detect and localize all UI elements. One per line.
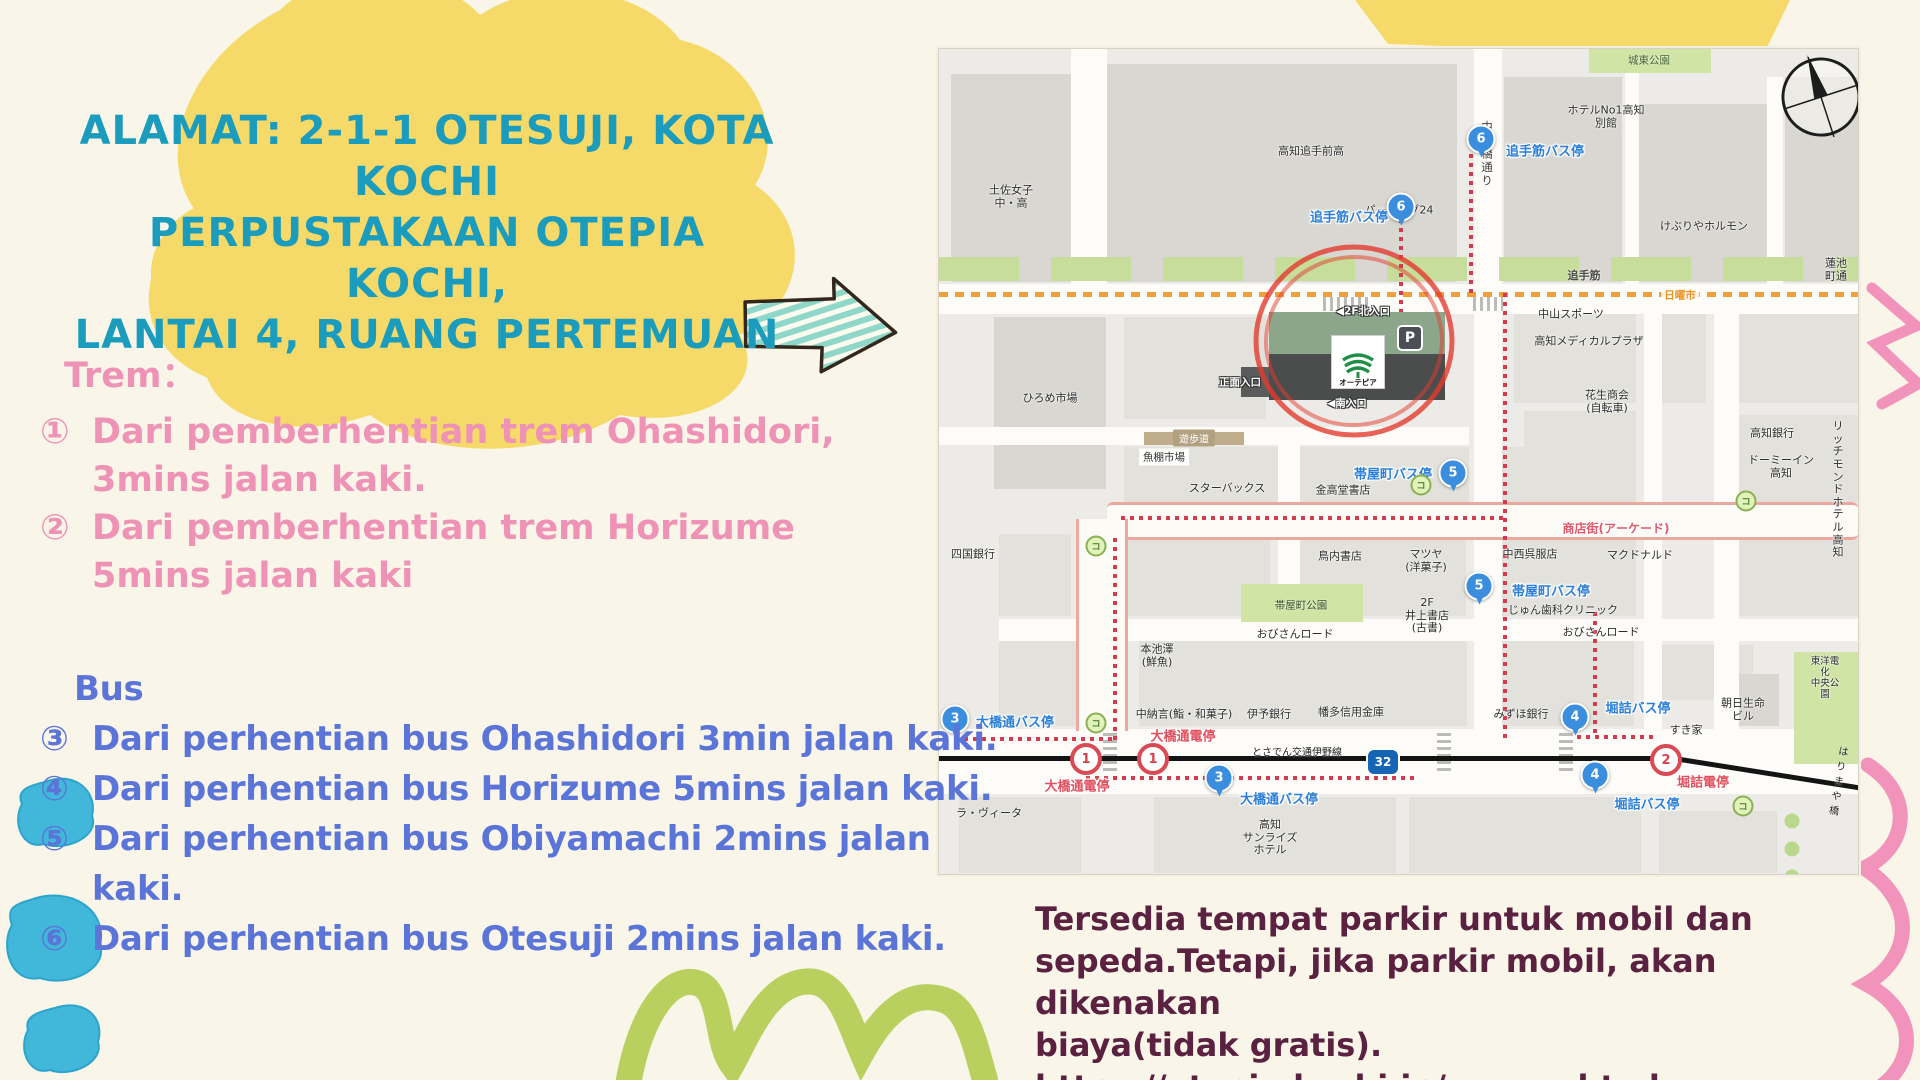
green-scribble: [628, 981, 985, 1080]
bus-stop-pin-5: 5: [1439, 459, 1468, 488]
tree-dot: [1785, 842, 1800, 857]
map-cwh: [1473, 297, 1503, 311]
bus-stop-pin-5: 5: [1465, 572, 1494, 601]
map-bk2: [999, 534, 1071, 616]
route-32-shield: 32: [1366, 748, 1400, 776]
tram-heading: Trem：: [64, 352, 840, 400]
map-rtv: [1113, 534, 1117, 740]
tram-item-text2: 5mins jalan kaki: [92, 552, 840, 600]
map-bk: [1107, 64, 1457, 282]
bus-directions: Bus ③Dari perhentian bus Ohashidori 3min…: [40, 664, 1030, 964]
bus-item-number: ③: [40, 714, 69, 764]
map-rth: [1577, 735, 1657, 739]
tram-item-text2: 3mins jalan kaki.: [92, 456, 840, 504]
tram-item-number: ①: [40, 408, 70, 456]
map-cwh: [1323, 297, 1369, 311]
title-line-2: KOCHI: [70, 157, 784, 208]
map-rail: [939, 756, 1676, 761]
bus-stop-pin-6: 6: [1467, 125, 1496, 154]
bus-item-text: Dari perhentian bus Horizume 5mins jalan…: [92, 764, 1030, 814]
tree-dot: [1785, 870, 1800, 876]
map-rth: [1121, 516, 1505, 520]
convenience-store-icon: コ: [1411, 475, 1432, 496]
map-bk2: [1659, 811, 1777, 873]
bus-heading: Bus: [74, 664, 1030, 714]
bus-stop-pin-4: 4: [1561, 703, 1590, 732]
bus-item-number: ⑤: [40, 814, 69, 864]
map-bk: [1504, 77, 1622, 282]
bus-item-text: Dari perhentian bus Ohashidori 3min jala…: [92, 714, 1030, 764]
map-cwv: [1437, 733, 1451, 771]
bus-item-1: ③Dari perhentian bus Ohashidori 3min jal…: [40, 714, 1030, 764]
map-label: 四国銀行: [951, 549, 995, 562]
tram-stop-marker-1: 1: [1137, 743, 1169, 775]
map-rtv: [1469, 153, 1473, 293]
bus-item-2: ④Dari perhentian bus Horizume 5mins jala…: [40, 764, 1030, 814]
tram-directions: Trem： ①Dari pemberhentian trem Ohashidor…: [40, 352, 840, 600]
compass-icon: [1775, 51, 1859, 143]
note-line-2: sepeda.Tetapi, jika parkir mobil, akan d…: [1035, 940, 1875, 1024]
otepia-logo-text: オーテピア: [1339, 378, 1377, 388]
tram-item-2: ②Dari pemberhentian trem Horizume5mins j…: [40, 504, 840, 600]
map-rtv: [1399, 217, 1403, 313]
slide: ALAMAT: 2-1-1 OTESUJI, KOTAKOCHIPERPUSTA…: [0, 0, 1920, 1080]
tree-dot: [1785, 814, 1800, 829]
tram-stop-marker-1: 1: [1070, 743, 1102, 775]
map-rtv: [1503, 291, 1507, 738]
map-bk2: [1657, 311, 1706, 403]
map-bk: [1639, 104, 1767, 282]
map-st: [1474, 49, 1502, 284]
bus-item-number: ④: [40, 764, 69, 814]
access-url: https://otepia.kochi.jp/access.html: [1035, 1066, 1875, 1080]
map-gpark: [1241, 584, 1363, 622]
map-tn: [1144, 432, 1244, 445]
map-bk: [951, 74, 1071, 282]
bus-item-text: Dari perhentian bus Obiyamachi 2mins jal…: [92, 814, 1030, 914]
otepia-logo: オーテピア: [1331, 335, 1385, 389]
parking-icon: P: [1397, 325, 1423, 351]
tram-item-number: ②: [40, 504, 70, 552]
access-map: オーテピア P 土佐女子 中・高高知追手前高ホテルNo1高知 別館けぶりやホルモ…: [938, 48, 1859, 875]
bus-item-3: ⑤Dari perhentian bus Obiyamachi 2mins ja…: [40, 814, 1030, 914]
map-bk2: [1514, 311, 1636, 403]
map-st: [1071, 49, 1107, 284]
tram-item-text: Dari pemberhentian trem Ohashidori,: [92, 408, 840, 456]
bus-stop-pin-6: 6: [1387, 193, 1416, 222]
book-icon: [1338, 348, 1378, 378]
bus-item-4: ⑥Dari perhentian bus Otesuji 2mins jalan…: [40, 914, 1030, 964]
map-bk2: [1409, 797, 1641, 873]
map-rtv: [1593, 611, 1597, 733]
convenience-store-icon: コ: [1733, 796, 1754, 817]
convenience-store-icon: コ: [1086, 536, 1107, 557]
map-bk: [994, 317, 1106, 489]
map-rth: [1086, 776, 1418, 780]
map-gpark: [1794, 652, 1858, 764]
note-line-1: Tersedia tempat parkir untuk mobil dan: [1035, 898, 1875, 940]
tram-item-text: Dari pemberhentian trem Horizume: [92, 504, 840, 552]
parking-note: Tersedia tempat parkir untuk mobil danse…: [1035, 898, 1875, 1080]
note-line-3: biaya(tidak gratis).: [1035, 1024, 1875, 1066]
tram-item-1: ①Dari pemberhentian trem Ohashidori,3min…: [40, 408, 840, 504]
map-bk2: [1154, 797, 1396, 873]
title-line-3: PERPUSTAKAAN OTEPIA KOCHI,: [70, 208, 784, 310]
map-bk2: [1494, 534, 1636, 616]
address-title: ALAMAT: 2-1-1 OTESUJI, KOTAKOCHIPERPUSTA…: [70, 106, 784, 361]
map-bk2: [1139, 641, 1467, 726]
bus-item-number: ⑥: [40, 914, 69, 964]
title-line-1: ALAMAT: 2-1-1 OTESUJI, KOTA: [70, 106, 784, 157]
convenience-store-icon: コ: [1736, 491, 1757, 512]
convenience-store-icon: コ: [1086, 713, 1107, 734]
map-bk2: [1729, 534, 1858, 616]
bus-stop-pin-4: 4: [1581, 761, 1610, 790]
map-st: [1625, 49, 1639, 284]
map-gpark: [1589, 49, 1711, 73]
tram-stop-marker-2: 2: [1650, 744, 1682, 776]
map-bk2: [1739, 311, 1858, 403]
library-building-wing: [1241, 367, 1269, 397]
bus-stop-pin-3: 3: [1205, 764, 1234, 793]
map-bk2: [1494, 447, 1636, 502]
bus-item-text: Dari perhentian bus Otesuji 2mins jalan …: [92, 914, 1030, 964]
